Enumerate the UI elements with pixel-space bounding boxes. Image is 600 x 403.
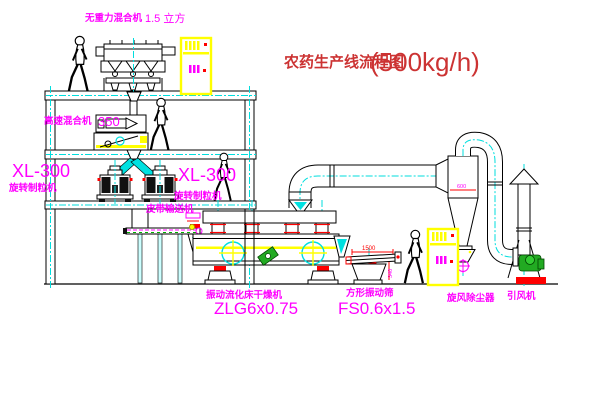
label-xl300-right: XL-300 bbox=[178, 165, 236, 185]
exhaust-duct bbox=[289, 158, 452, 211]
title-capacity: (500kg/h) bbox=[370, 47, 480, 77]
belt-conveyor bbox=[123, 224, 204, 283]
fluid-bed-dryer bbox=[186, 200, 350, 284]
label-high-speed-mixer: 高速混合机 bbox=[44, 115, 92, 127]
label-dryer-model: ZLG6x0.75 bbox=[214, 299, 298, 318]
label-screen-name: 方形振动筛 bbox=[346, 287, 394, 299]
label-granulator-right: 旋转制粒机 bbox=[173, 190, 222, 202]
dryer-feet bbox=[205, 266, 338, 284]
dryer-ports bbox=[210, 223, 330, 234]
person-ground bbox=[405, 230, 423, 283]
control-cabinet-upper bbox=[181, 38, 211, 94]
dim-cyclone-diameter: 600 bbox=[457, 184, 466, 190]
label-xl300-left: XL-300 bbox=[12, 161, 70, 181]
label-gravity-mixer-capacity: 1.5 立方 bbox=[145, 11, 185, 25]
cad-drawing: 农药生产线流程图 (500kg/h) 无重力混合机 1.5 立方 高速混合机 3… bbox=[0, 0, 600, 403]
person-second-floor bbox=[151, 98, 169, 150]
label-gravity-mixer: 无重力混合机 bbox=[84, 12, 143, 24]
mixer-feed-pipe bbox=[127, 92, 141, 115]
label-fan: 引风机 bbox=[507, 290, 536, 302]
label-high-speed-mixer-capacity: 350 bbox=[98, 114, 120, 129]
induced-draft-fan bbox=[508, 164, 546, 286]
person-top-floor bbox=[69, 36, 88, 90]
flow-diagram-canvas: 农药生产线流程图 (500kg/h) 无重力混合机 1.5 立方 高速混合机 3… bbox=[0, 0, 600, 403]
dim-screen-height: 340 bbox=[388, 269, 394, 278]
label-cyclone: 旋风除尘器 bbox=[446, 292, 495, 304]
dim-screen-length: 1500 bbox=[362, 246, 376, 252]
label-screen-model: FS0.6x1.5 bbox=[338, 299, 416, 318]
label-granulator-left: 旋转制粒机 bbox=[8, 182, 57, 194]
label-belt-conveyor: 皮带输送机 bbox=[145, 203, 194, 215]
control-cabinet-lower bbox=[428, 229, 458, 285]
